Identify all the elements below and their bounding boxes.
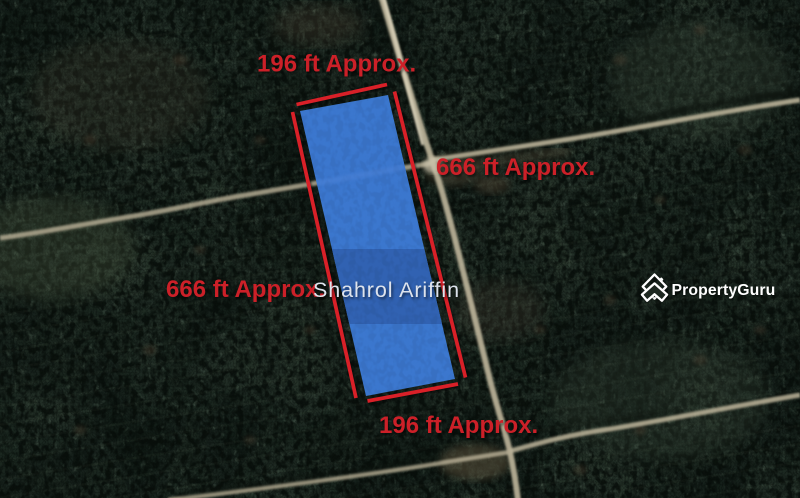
svg-text:Shahrol Ariffin: Shahrol Ariffin xyxy=(313,278,460,302)
svg-text:196 ft Approx.: 196 ft Approx. xyxy=(257,51,416,78)
svg-text:666 ft Approx.: 666 ft Approx. xyxy=(166,276,325,303)
svg-text:196 ft Approx.: 196 ft Approx. xyxy=(379,412,538,439)
svg-text:PropertyGuru: PropertyGuru xyxy=(672,282,776,299)
svg-text:666 ft Approx.: 666 ft Approx. xyxy=(436,154,595,181)
